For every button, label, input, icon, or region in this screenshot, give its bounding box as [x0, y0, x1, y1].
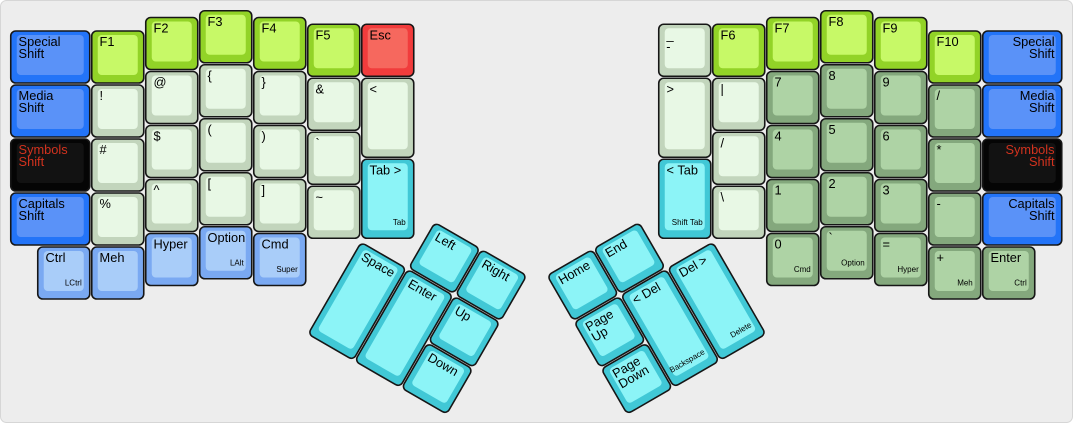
- svg-text:Super: Super: [276, 265, 298, 274]
- svg-text:9: 9: [883, 75, 890, 90]
- svg-text:1: 1: [775, 183, 782, 198]
- svg-text:/: /: [937, 88, 941, 103]
- svg-text:F8: F8: [829, 14, 844, 29]
- svg-text:[: [: [208, 176, 212, 191]
- svg-text:5: 5: [829, 122, 836, 137]
- svg-text:!: !: [100, 88, 104, 103]
- svg-text:Shift Tab: Shift Tab: [672, 218, 704, 227]
- svg-text:Meh: Meh: [957, 279, 973, 288]
- svg-text:Shift: Shift: [1029, 46, 1055, 61]
- svg-text:< Tab: < Tab: [667, 162, 698, 177]
- svg-text:Cmd: Cmd: [262, 237, 289, 252]
- svg-text:^: ^: [154, 183, 160, 198]
- svg-text:): ): [262, 129, 266, 144]
- svg-text:`: `: [829, 230, 833, 245]
- svg-text:2: 2: [829, 176, 836, 191]
- svg-text:}: }: [262, 75, 267, 90]
- svg-text:Shift: Shift: [19, 154, 45, 169]
- svg-text:@: @: [154, 75, 167, 90]
- svg-text:+: +: [937, 250, 944, 265]
- svg-text:*: *: [937, 142, 942, 157]
- svg-text:8: 8: [829, 68, 836, 83]
- svg-text:Tab >: Tab >: [370, 162, 402, 177]
- svg-text:Hyper: Hyper: [154, 237, 189, 252]
- svg-text:`: `: [316, 135, 320, 150]
- svg-text:F9: F9: [883, 21, 898, 36]
- svg-text:Shift: Shift: [19, 100, 45, 115]
- svg-text:F10: F10: [937, 34, 959, 49]
- svg-text:%: %: [100, 196, 111, 211]
- svg-text:-: -: [666, 39, 670, 54]
- svg-text:F6: F6: [721, 27, 736, 42]
- svg-text:{: {: [208, 68, 213, 83]
- svg-text:Tab: Tab: [393, 218, 406, 227]
- svg-text:Ctrl: Ctrl: [1014, 279, 1027, 288]
- svg-text:Shift: Shift: [19, 46, 45, 61]
- svg-text:Option: Option: [841, 258, 865, 267]
- svg-text:6: 6: [883, 129, 890, 144]
- svg-text:Hyper: Hyper: [897, 265, 919, 274]
- svg-text:F3: F3: [208, 14, 223, 29]
- svg-text:(: (: [208, 122, 213, 137]
- svg-text:-: -: [937, 196, 941, 211]
- svg-text:F1: F1: [100, 34, 115, 49]
- svg-text:LCtrl: LCtrl: [65, 279, 82, 288]
- svg-text:Cmd: Cmd: [794, 265, 811, 274]
- svg-text:3: 3: [883, 183, 890, 198]
- svg-text:#: #: [100, 142, 108, 157]
- svg-text:&: &: [316, 81, 325, 96]
- svg-text:<: <: [370, 81, 377, 96]
- svg-text:4: 4: [775, 129, 782, 144]
- svg-text:LAlt: LAlt: [230, 258, 245, 267]
- svg-text:7: 7: [775, 75, 782, 90]
- svg-text:]: ]: [262, 183, 266, 198]
- svg-text:Meh: Meh: [100, 250, 125, 265]
- svg-text:F7: F7: [775, 21, 790, 36]
- svg-text:F5: F5: [316, 27, 331, 42]
- svg-text:Option: Option: [208, 230, 246, 245]
- svg-text:Ctrl: Ctrl: [46, 250, 66, 265]
- svg-text:\: \: [721, 189, 725, 204]
- svg-text:/: /: [721, 135, 725, 150]
- svg-text:Shift: Shift: [1029, 100, 1055, 115]
- svg-text:Shift: Shift: [1029, 154, 1055, 169]
- svg-text:F4: F4: [262, 21, 277, 36]
- svg-text:Shift: Shift: [1029, 208, 1055, 223]
- svg-text:|: |: [721, 81, 724, 96]
- svg-text:0: 0: [775, 237, 782, 252]
- svg-text:F2: F2: [154, 21, 169, 36]
- svg-text:Esc: Esc: [370, 27, 392, 42]
- svg-text:~: ~: [316, 189, 323, 204]
- svg-text:=: =: [883, 237, 890, 252]
- svg-text:$: $: [154, 129, 161, 144]
- svg-text:Shift: Shift: [19, 208, 45, 223]
- svg-text:Enter: Enter: [991, 250, 1022, 265]
- svg-text:>: >: [667, 81, 674, 96]
